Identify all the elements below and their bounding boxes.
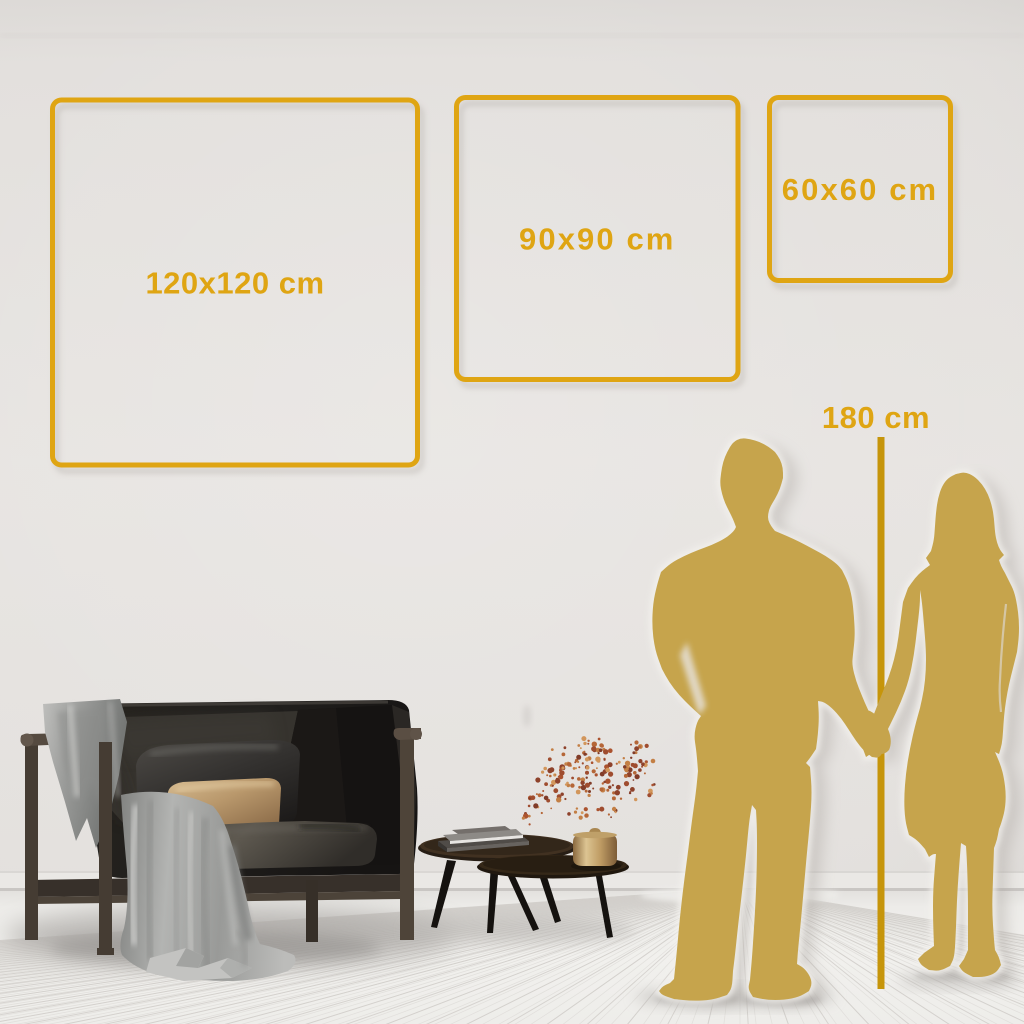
svg-text:120x120 cm: 120x120 cm [145, 266, 324, 301]
svg-text:60x60 cm: 60x60 cm [782, 172, 938, 207]
svg-text:90x90 cm: 90x90 cm [519, 222, 675, 257]
svg-text:180 cm: 180 cm [822, 400, 930, 435]
